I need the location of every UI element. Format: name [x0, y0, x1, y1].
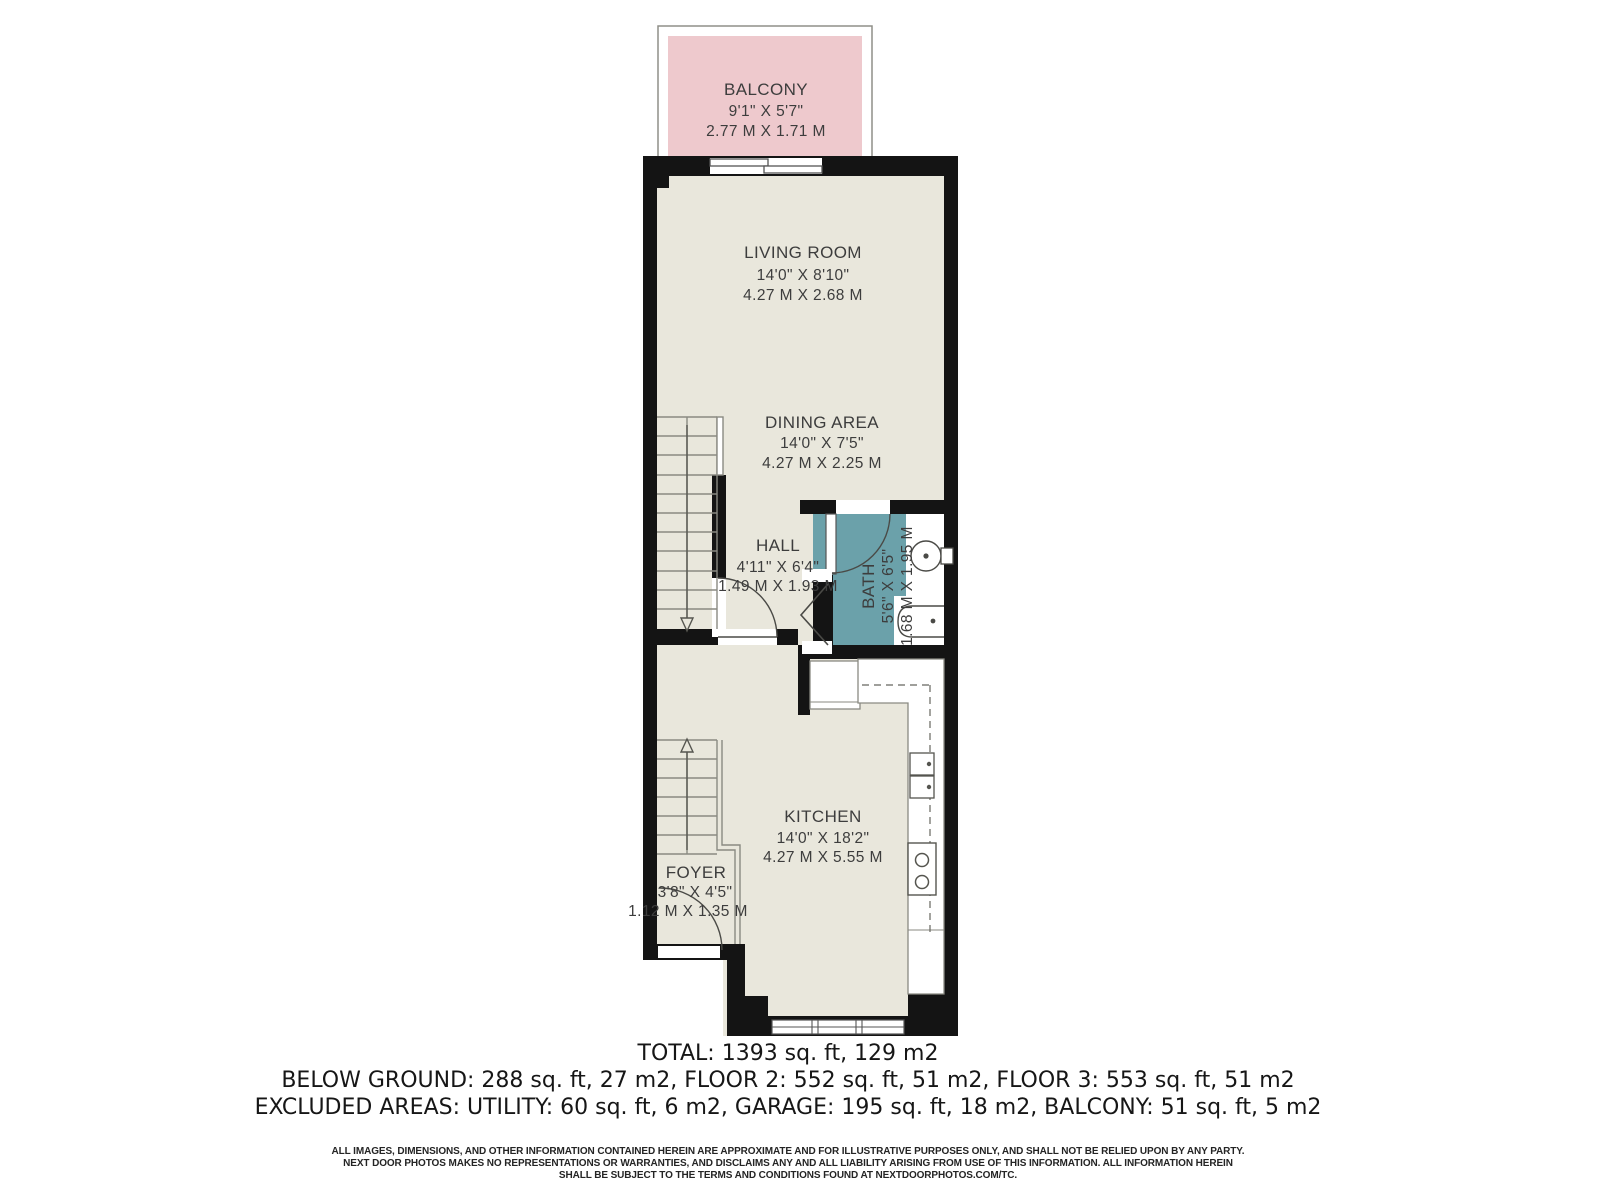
- room-dim-imperial: 14'0" X 7'5": [780, 435, 864, 452]
- area-summary: TOTAL: 1393 sq. ft, 129 m2 BELOW GROUND:…: [0, 1040, 1576, 1121]
- total-area-line: TOTAL: 1393 sq. ft, 129 m2: [0, 1040, 1576, 1067]
- wall-hall-bottom: [777, 629, 798, 645]
- room-dim-metric: 1.68 M X 1.95 M: [899, 526, 916, 646]
- wall-stair-side: [712, 475, 726, 578]
- wall-right: [944, 156, 958, 1036]
- room-name: LIVING ROOM: [744, 243, 862, 262]
- disclaimer-line: ALL IMAGES, DIMENSIONS, AND OTHER INFORM…: [0, 1146, 1576, 1158]
- toilet-tank: [941, 548, 953, 564]
- balcony-dim-imperial: 9'1" X 5'7": [729, 103, 804, 120]
- balcony: BALCONY 9'1" X 5'7" 2.77 M X 1.71 M: [658, 26, 872, 158]
- room-dim-imperial: 3'8" X 4'5": [658, 884, 733, 901]
- sliding-door-panel: [764, 166, 822, 173]
- bath-door-gap: [836, 500, 890, 514]
- drawer-knob: [927, 785, 931, 789]
- wall-kitchen-stub: [798, 645, 810, 715]
- disclaimer-line: SHALL BE SUBJECT TO THE TERMS AND CONDIT…: [0, 1170, 1576, 1182]
- bath-door-leaf: [826, 514, 836, 574]
- stove: [908, 843, 936, 895]
- wall-left: [643, 156, 657, 960]
- room-name: HALL: [756, 536, 800, 555]
- disclaimer-line: NEXT DOOR PHOTOS MAKES NO REPRESENTATION…: [0, 1158, 1576, 1170]
- room-name: FOYER: [666, 863, 727, 882]
- room-dim-metric: 1.12 M X 1.35 M: [628, 903, 748, 920]
- bathtub-drain: [931, 619, 936, 624]
- room-dim-imperial: 14'0" X 18'2": [777, 830, 870, 847]
- living-room-label: LIVING ROOM 14'0" X 8'10" 4.27 M X 2.68 …: [743, 243, 863, 304]
- wall-corner-step: [657, 176, 669, 188]
- room-name: BATH: [859, 563, 878, 609]
- burner-icon: [916, 876, 929, 889]
- floor-plan-page: BALCONY 9'1" X 5'7" 2.77 M X 1.71 M: [0, 0, 1600, 1200]
- room-dim-imperial: 5'6" X 6'5": [880, 549, 897, 624]
- sliding-door: [710, 158, 822, 174]
- room-dim-imperial: 14'0" X 8'10": [757, 267, 850, 284]
- sliding-door-panel: [710, 159, 768, 166]
- balcony-dim-metric: 2.77 M X 1.71 M: [706, 123, 826, 140]
- room-dim-metric: 4.27 M X 2.68 M: [743, 287, 863, 304]
- toilet-drain: [923, 553, 928, 558]
- entry-door-gap: [658, 946, 720, 958]
- door-jamb: [802, 641, 832, 654]
- sink-drawers: [910, 753, 934, 798]
- stair-rail: [717, 417, 723, 475]
- excluded-areas-line: EXCLUDED AREAS: UTILITY: 60 sq. ft, 6 m2…: [0, 1094, 1576, 1121]
- burner-icon: [916, 854, 929, 867]
- floor-plan-drawing: BALCONY 9'1" X 5'7" 2.77 M X 1.71 M: [0, 0, 1600, 1200]
- room-name: KITCHEN: [784, 807, 861, 826]
- floor-areas-line: BELOW GROUND: 288 sq. ft, 27 m2, FLOOR 2…: [0, 1067, 1576, 1094]
- room-dim-metric: 4.27 M X 5.55 M: [763, 849, 883, 866]
- disclaimer: ALL IMAGES, DIMENSIONS, AND OTHER INFORM…: [0, 1146, 1576, 1182]
- kitchen-window: [772, 1020, 904, 1034]
- room-dim-metric: 4.27 M X 2.25 M: [762, 455, 882, 472]
- room-name: DINING AREA: [765, 413, 879, 432]
- drawer-knob: [927, 762, 931, 766]
- room-dim-imperial: 4'11" X 6'4": [737, 559, 820, 576]
- balcony-label: BALCONY: [724, 80, 808, 99]
- room-dim-metric: 1.49 M X 1.93 M: [718, 578, 838, 595]
